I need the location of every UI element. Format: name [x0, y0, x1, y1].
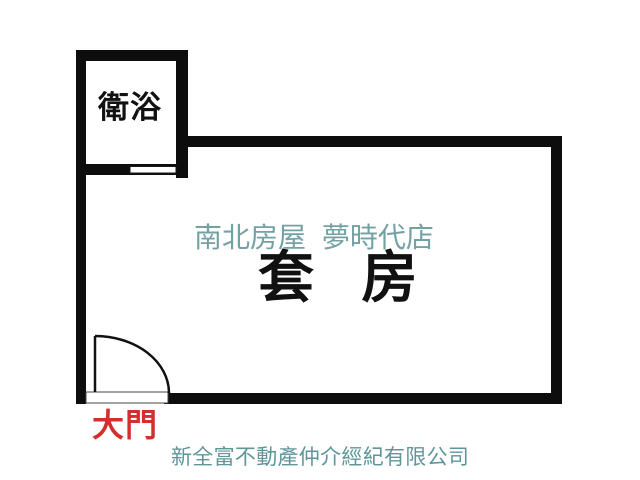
floorplan-canvas: 衛浴 南北房屋 夢時代店 套 房 大門 新全富不動產仲介經紀有限公司 [0, 0, 640, 480]
bathroom-wall-top [76, 50, 188, 61]
main-door-threshold [86, 392, 168, 403]
company-name-text: 新全富不動產仲介經紀有限公司 [171, 447, 469, 468]
bathroom-door-opening [130, 167, 176, 174]
wall-top [176, 136, 562, 147]
main-door-swing-arc [95, 336, 169, 393]
bathroom-label: 衛浴 [98, 93, 162, 124]
room-label: 套 房 [258, 251, 418, 307]
main-door-label: 大門 [92, 409, 158, 441]
wall-bottom [164, 393, 562, 404]
wall-right [551, 136, 562, 404]
wall-left [76, 50, 86, 404]
bathroom-wall-right [176, 50, 188, 178]
